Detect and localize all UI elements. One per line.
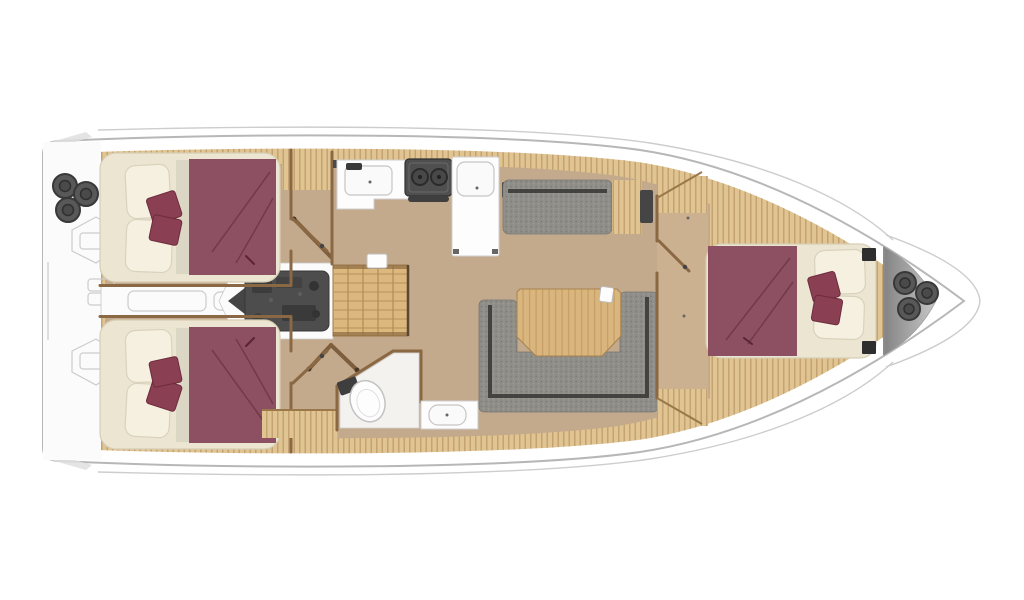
fridge-counter-unit (452, 157, 499, 256)
throw-pillow (811, 295, 843, 325)
faucet-icon (346, 163, 362, 170)
fwd-cabin-floor (657, 213, 708, 389)
fwd-platform-bottom (657, 386, 708, 426)
drain-dot (369, 181, 372, 184)
under-stairs-cabinet (262, 410, 338, 438)
headboard-locker (862, 248, 876, 261)
door-knob (683, 265, 687, 269)
companionway-step (367, 254, 387, 268)
settee-side-shelf (612, 180, 642, 234)
throw-pillow (149, 214, 183, 245)
companionway-stairs (333, 254, 408, 336)
fwd-platform-top (657, 176, 708, 216)
galley-sink (345, 166, 392, 195)
door-knob (320, 244, 324, 248)
salon-locker (640, 190, 653, 223)
yacht-floor-plan (0, 0, 1024, 600)
bed-blanket (708, 246, 797, 356)
stove-gimbal (408, 196, 449, 202)
straight-settee (503, 180, 612, 234)
table-lamp (599, 286, 614, 303)
second-sink (457, 162, 494, 196)
headboard-locker (862, 341, 876, 354)
stove (405, 159, 452, 202)
